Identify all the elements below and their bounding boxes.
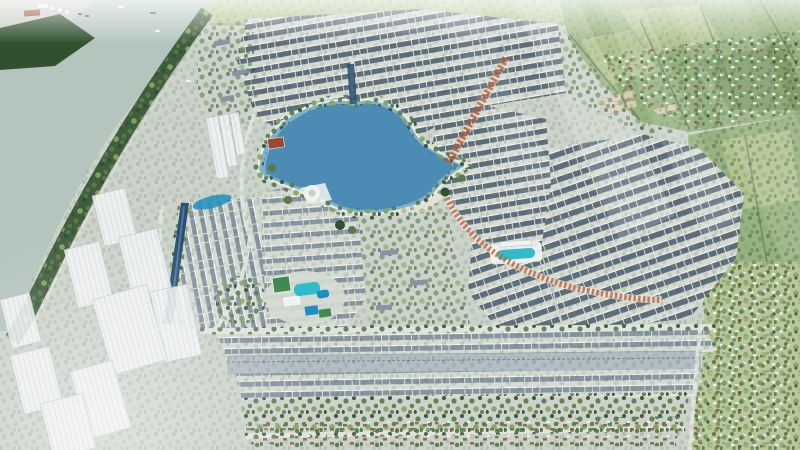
red-roof-building (267, 137, 284, 149)
scene-svg (0, 0, 800, 450)
tennis-court (272, 276, 291, 293)
clubhouse (282, 295, 301, 307)
horizon-haze (0, 0, 800, 44)
aerial-masterplan-render (0, 0, 800, 450)
sport-court-blue (305, 305, 319, 316)
